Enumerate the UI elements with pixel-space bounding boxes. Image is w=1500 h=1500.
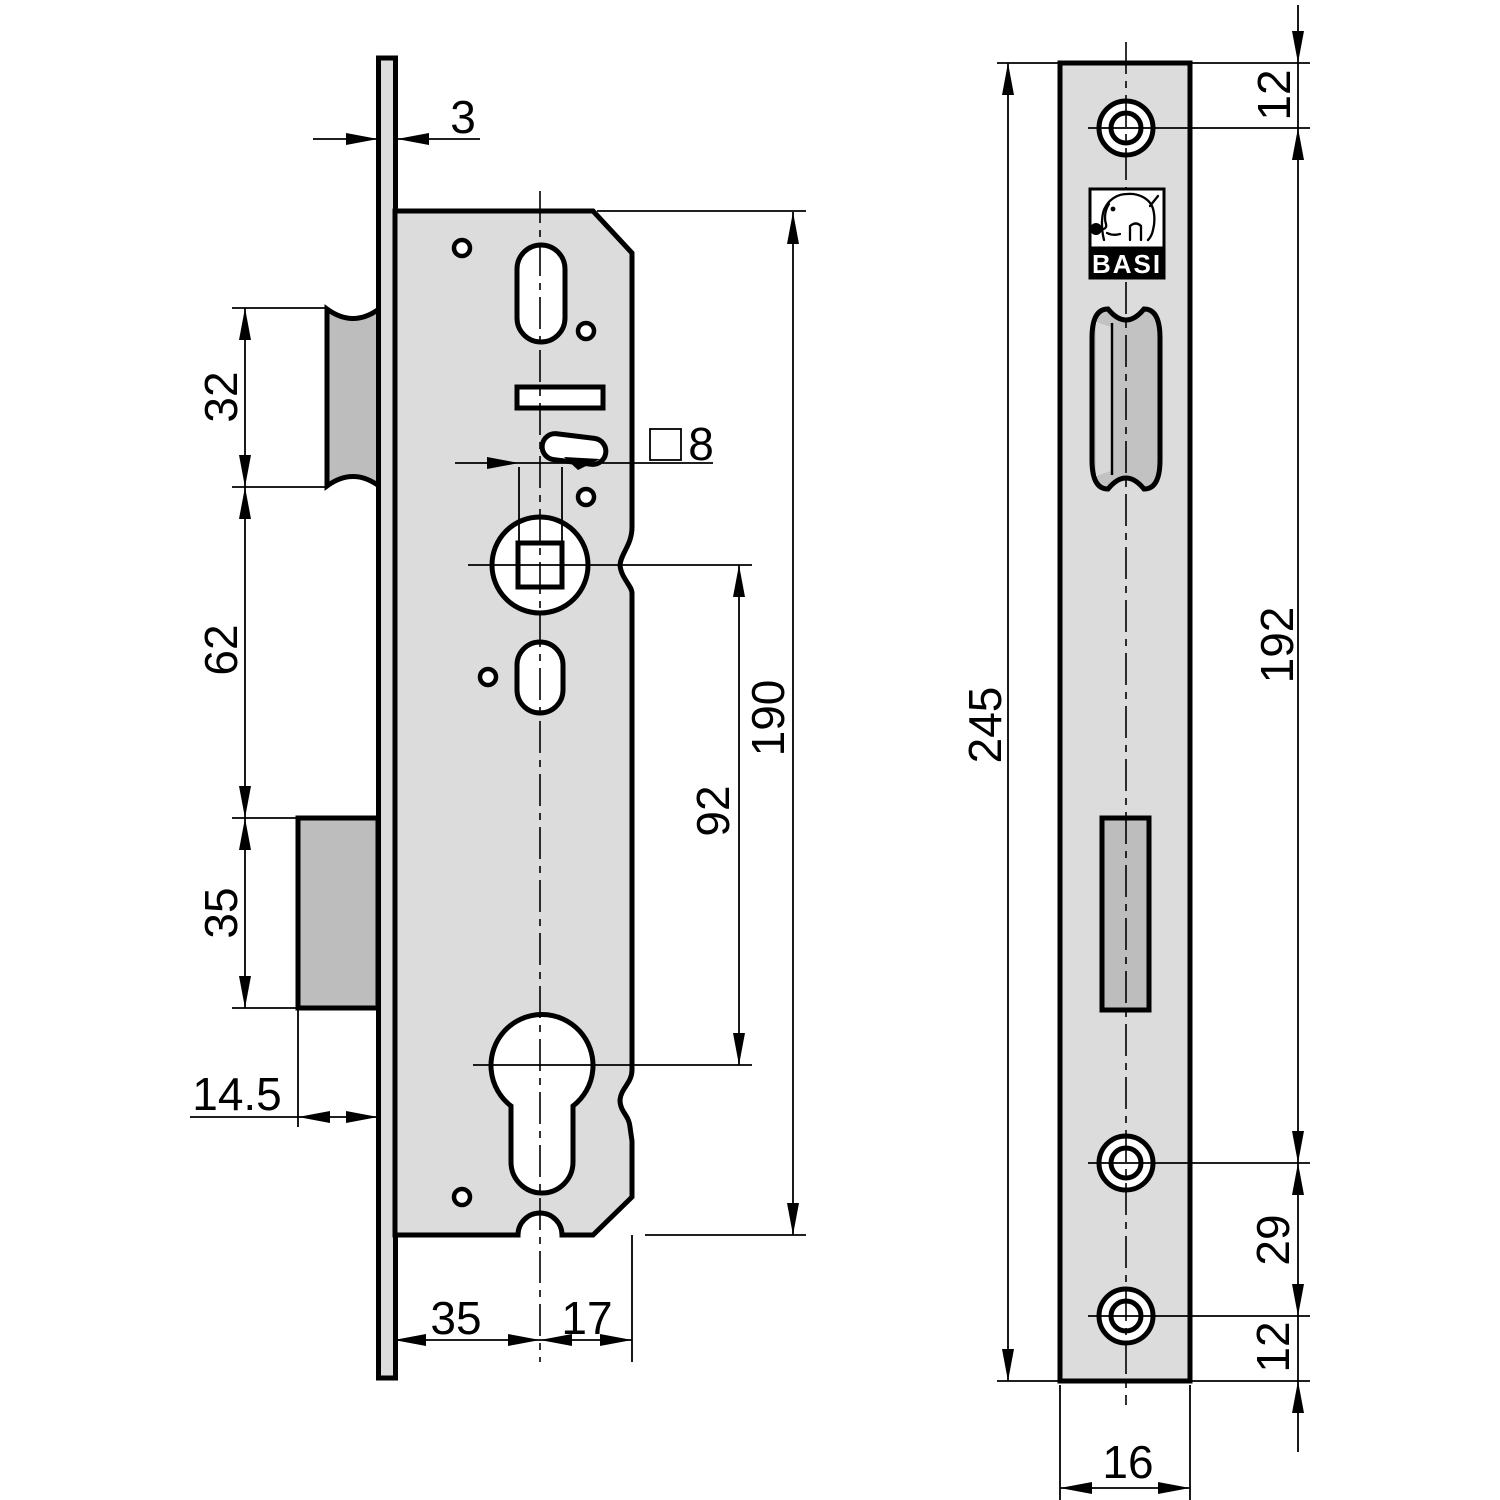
front-view: BASI 245 xyxy=(959,5,1310,1500)
arrow-left-icon xyxy=(397,133,429,145)
elephant-eye-icon xyxy=(1111,207,1116,212)
oblong-hole-top xyxy=(517,245,565,342)
dim-label-bottom-screw-offset: 12 xyxy=(1247,1321,1299,1372)
dim-plate-height: 245 xyxy=(959,63,1060,1381)
arrow-down-icon xyxy=(1292,31,1304,63)
rivet-hole-mid xyxy=(578,489,594,505)
arrow-up-icon xyxy=(733,565,745,597)
arrow-right-icon xyxy=(508,1334,540,1346)
dim-label-backset: 35 xyxy=(430,1292,481,1344)
dim-backset: 35 17 xyxy=(394,1235,632,1362)
brand-name: BASI xyxy=(1092,249,1162,279)
arrow-down-icon xyxy=(1002,1349,1014,1381)
arrow-right-icon xyxy=(346,1111,378,1123)
dim-plate-width: 16 xyxy=(1060,1385,1190,1500)
arrow-up-icon xyxy=(787,212,799,244)
dim-bolt-throw: 14.5 xyxy=(190,1008,378,1127)
arrow-left-icon xyxy=(1060,1482,1092,1494)
arrow-up-icon xyxy=(1292,128,1304,160)
dim-label-lower-screw-spacing: 29 xyxy=(1247,1214,1299,1265)
dim-label-bolt-throw: 14.5 xyxy=(192,1068,282,1120)
dim-label-spindle-square: 8 xyxy=(688,418,714,470)
dim-label-latch-to-bolt: 62 xyxy=(195,624,247,675)
arrow-up-icon xyxy=(1292,1163,1304,1195)
dim-label-case-height: 190 xyxy=(742,680,794,757)
arrow-right-icon xyxy=(1158,1482,1190,1494)
arrow-up-icon xyxy=(1292,1381,1304,1413)
rivet-hole-left-mid xyxy=(480,669,496,685)
arrow-down-icon xyxy=(239,976,251,1008)
key-ball-icon xyxy=(1090,223,1102,235)
arrow-up-icon xyxy=(1002,63,1014,95)
dim-label-latch-height: 32 xyxy=(195,371,247,422)
arrow-left-icon xyxy=(298,1111,330,1123)
dim-label-plate-width: 16 xyxy=(1102,1436,1153,1488)
arrow-down-icon xyxy=(239,786,251,818)
arrow-up-icon xyxy=(239,487,251,519)
dim-spindle-to-cylinder: 92 xyxy=(687,565,745,1065)
arrow-down-icon xyxy=(787,1203,799,1235)
brand-logo: BASI xyxy=(1090,189,1164,279)
arrow-down-icon xyxy=(1292,1284,1304,1316)
technical-drawing-page: 3 32 62 35 14.5 xyxy=(0,0,1500,1500)
arrow-left-icon xyxy=(394,1334,426,1346)
dim-label-axis-to-back: 17 xyxy=(561,1292,612,1344)
dim-chain-right: 12 192 29 12 xyxy=(1192,5,1310,1452)
rivet-hole-top-left xyxy=(454,240,470,256)
side-view: 3 32 62 35 14.5 xyxy=(190,58,806,1378)
arrow-up-icon xyxy=(239,818,251,850)
adjust-slot xyxy=(517,387,603,408)
arrow-right-icon xyxy=(346,133,378,145)
rivet-hole-bottom-left xyxy=(454,1189,470,1205)
dim-label-spindle-to-cylinder: 92 xyxy=(687,785,739,836)
rivet-hole-upper-right xyxy=(578,323,594,339)
arrow-up-icon xyxy=(239,308,251,340)
dead-bolt xyxy=(298,818,378,1008)
dim-label-bolt-height: 35 xyxy=(195,887,247,938)
dim-label-top-screw-offset: 12 xyxy=(1248,69,1300,120)
arrow-down-icon xyxy=(1292,1131,1304,1163)
square-symbol-icon xyxy=(650,429,681,460)
latch-bevel-highlight xyxy=(1096,322,1111,476)
arrow-down-icon xyxy=(239,455,251,487)
dim-label-plate-thickness: 3 xyxy=(450,91,476,143)
dim-label-screw-spacing: 192 xyxy=(1251,607,1303,684)
dim-label-plate-height: 245 xyxy=(959,687,1011,764)
arrow-down-icon xyxy=(733,1033,745,1065)
mortise-lock-drawing: 3 32 62 35 14.5 xyxy=(0,0,1500,1500)
latch-bolt xyxy=(327,309,379,486)
